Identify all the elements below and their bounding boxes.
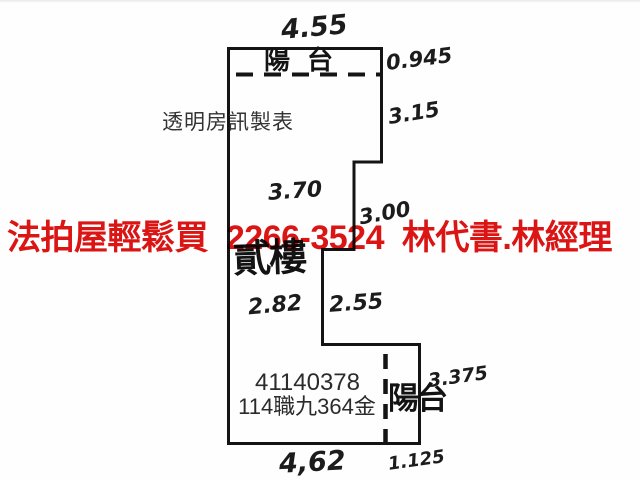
watermark-text: 法拍屋輕鬆買 2266-3524 林代書.林經理 (7, 218, 612, 259)
dim-bottom-width: 4,62 (278, 447, 346, 477)
floorplan-scan: 4.55 0.945 3.15 3.70 3.00 2.82 2.55 3.37… (0, 0, 640, 480)
case-number: 41140378 (230, 371, 385, 395)
dim-top-width: 4.55 (280, 11, 349, 44)
case-reference: 114職九364金 (228, 396, 386, 418)
maker-label: 透明房訊製表 (162, 112, 294, 133)
dim-interior-upper: 3.70 (267, 179, 323, 205)
dim-interior-lower-left: 2.82 (247, 293, 303, 320)
top-balcony-label: 陽台 (264, 48, 350, 74)
dim-interior-lower-right: 2.55 (328, 291, 384, 317)
bottom-balcony-label: 陽台 (388, 384, 446, 415)
